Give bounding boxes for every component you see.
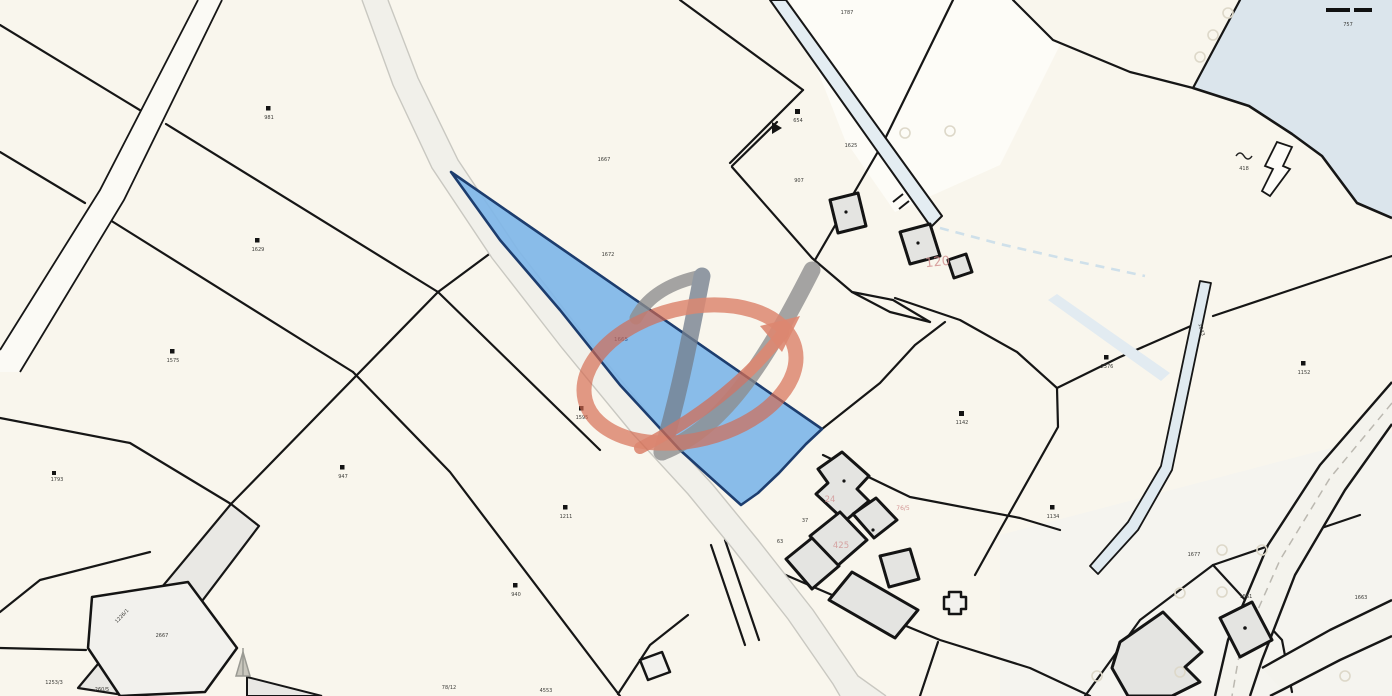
red-parcel-number: 425 xyxy=(833,541,849,551)
parcel-number-label: 1677 xyxy=(1188,552,1201,558)
parcel-number-label: 1793 xyxy=(51,477,64,483)
parcel-number-label: 907 xyxy=(794,178,804,184)
parcel-number-label: 1152 xyxy=(1298,370,1311,376)
parcel-number-label: 260/5 xyxy=(95,687,109,693)
parcel-number-label: 940 xyxy=(511,592,521,598)
parcel-number-label: 418 xyxy=(1239,166,1249,172)
building xyxy=(948,254,972,278)
parcel-number-label: 757 xyxy=(1343,22,1353,28)
parcel-number-label: 1672 xyxy=(602,252,615,258)
parcel-number-label: 1211 xyxy=(560,514,573,520)
parcel-number-label: 63 xyxy=(777,539,783,545)
parcel-number-label: 1625 xyxy=(845,143,858,149)
parcel-number-label: 1663 xyxy=(1355,595,1368,601)
building xyxy=(880,549,919,587)
cadastral-map-canvas[interactable]: 1667 1672 981 1629 1575 947 1793 1595 12… xyxy=(0,0,1392,696)
parcel-number-label: 654 xyxy=(793,118,803,124)
parcel-number-label: 2376 xyxy=(1101,364,1114,370)
parcel-number-label: 1142 xyxy=(956,420,969,426)
parcel-number-label: 1134 xyxy=(1047,514,1060,520)
dash-symbols xyxy=(1326,8,1372,12)
parcel-number-label: 2667 xyxy=(156,633,169,639)
parcel-number-label: 1253/3 xyxy=(45,680,63,686)
parcel-number-label: 37 xyxy=(802,518,808,524)
parcel-number-label: 1561 xyxy=(1240,594,1253,600)
parcel-number-label: 947 xyxy=(338,474,348,480)
parcel-number-label: 78/12 xyxy=(442,685,456,691)
parcel-number-label: 4553 xyxy=(540,688,553,694)
parcel-number-label: 1667 xyxy=(598,157,611,163)
building xyxy=(830,193,866,233)
red-parcel-number: 76/5 xyxy=(896,505,910,512)
red-parcel-number: 24 xyxy=(825,495,836,505)
parcel-number-label: 1629 xyxy=(252,247,265,253)
red-parcel-number: 120 xyxy=(925,254,951,272)
parcel-number-label: 1787 xyxy=(841,10,854,16)
parcel-number-label: 981 xyxy=(264,115,274,121)
parcel-number-label: 1575 xyxy=(167,358,180,364)
